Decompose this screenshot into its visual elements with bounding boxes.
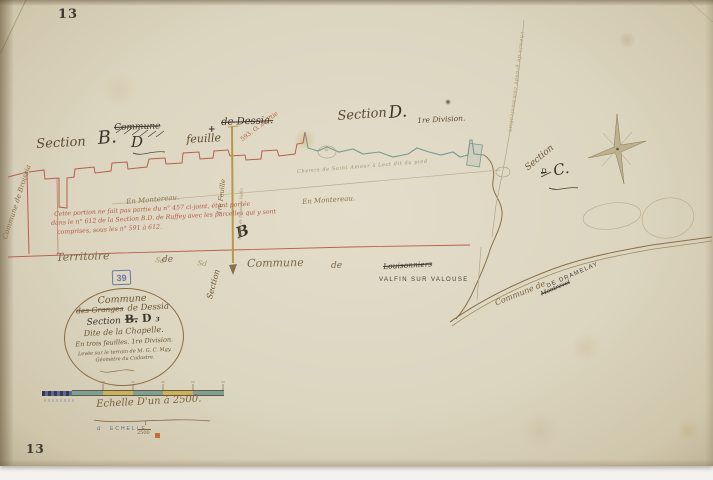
cartouche-code-sup: 3 — [155, 317, 160, 324]
cross-mark-icon: + — [208, 126, 216, 135]
commune-word: Commune — [247, 257, 304, 269]
struck-commune: Commune — [114, 122, 161, 133]
sd-mark-2: Sd — [197, 260, 207, 268]
section-d-word: Section — [337, 107, 387, 123]
scale-stamp-glyph: a — [97, 426, 101, 432]
scale-frac-den: 2500 — [137, 431, 150, 436]
scale-frac-num: 1 — [144, 422, 147, 427]
cartouche-code-d: D — [142, 312, 152, 324]
section-b-dword: D — [131, 135, 143, 150]
scale-seg-1 — [72, 390, 103, 396]
folio-number-bottom: 13 — [26, 443, 45, 455]
scale-seg-2 — [103, 390, 133, 396]
cartouche-code-b: B. — [124, 313, 138, 325]
departement-code-box: 39 — [112, 270, 132, 286]
orange-seal-dot — [155, 433, 160, 438]
blob-letter: a — [325, 148, 328, 153]
de-word-1: de — [162, 256, 173, 265]
valfin-stamp: VALFIN SUR VALOUSE — [379, 277, 469, 283]
scale-bar-dense — [42, 391, 72, 396]
cartouche-geometre: Géomètre du Cadastre. — [95, 355, 154, 364]
cartouche-section-word: Section — [86, 317, 121, 328]
section-b-feuille: feuille — [186, 132, 221, 145]
de-word-2: de — [331, 262, 342, 271]
section-c-letter: C. — [552, 161, 570, 179]
cadastral-map-sheet: 13 13 Section B. D feuille Commune + de … — [0, 0, 713, 480]
section-c-struck: D — [541, 169, 547, 176]
section-b-word: Section — [36, 135, 86, 151]
folio-number-top: 13 — [58, 8, 78, 21]
territoire-word: Territoire — [56, 250, 110, 263]
section-d-letter: D. — [388, 103, 408, 122]
